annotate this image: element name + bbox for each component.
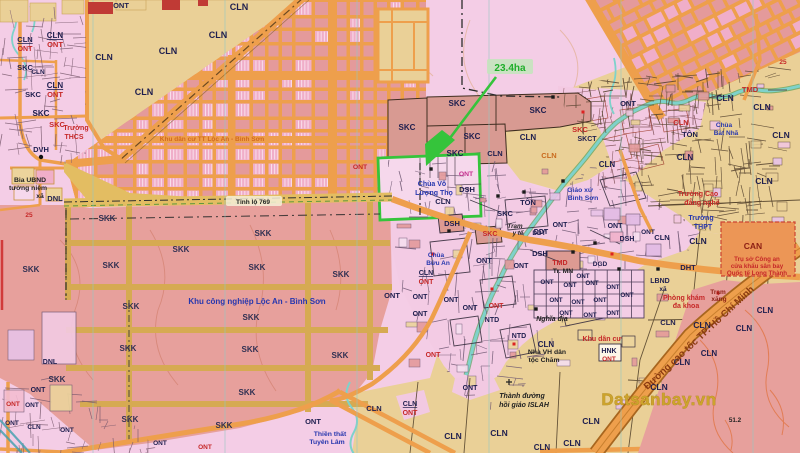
svg-text:ONT: ONT [60,427,74,434]
svg-text:THCS: THCS [64,134,83,141]
svg-text:ONT: ONT [413,294,429,301]
svg-text:Bình Sơn: Bình Sơn [568,195,599,202]
svg-text:DGD: DGD [593,261,608,268]
svg-text:ONT: ONT [606,284,619,291]
svg-text:SKCT: SKCT [577,136,597,143]
svg-text:ONT: ONT [403,410,419,417]
svg-text:tộc Chăm: tộc Chăm [529,357,560,364]
svg-text:SKC: SKC [497,209,513,218]
svg-text:CLN: CLN [582,416,599,426]
svg-text:CLN: CLN [435,197,450,206]
svg-text:ONT: ONT [419,279,435,286]
svg-text:SKC: SKC [464,132,481,141]
svg-text:TMD: TMD [742,85,759,94]
svg-text:Trường: Trường [63,125,88,132]
svg-text:CLN: CLN [47,81,64,90]
svg-text:SKK: SKK [333,270,350,279]
svg-text:CLN: CLN [444,431,461,441]
svg-text:DSH: DSH [444,219,460,228]
svg-text:DDT: DDT [532,230,545,237]
svg-text:SKK: SKK [242,345,259,354]
svg-text:DNL: DNL [47,194,63,203]
svg-text:ONT: ONT [608,223,624,230]
svg-text:Trường: Trường [688,215,713,222]
svg-text:ONT: ONT [47,40,63,49]
svg-text:Khu dân cư TT Lộc An - Bình Sơ: Khu dân cư TT Lộc An - Bình Sơn [160,136,264,143]
svg-text:cửa khẩu sân bay: cửa khẩu sân bay [731,263,784,270]
svg-text:CLN: CLN [677,153,694,162]
svg-text:CLN: CLN [159,46,178,56]
svg-text:CLN: CLN [230,2,249,12]
svg-text:CLN: CLN [403,401,417,408]
svg-text:ONT: ONT [620,99,636,108]
svg-text:SKK: SKK [103,261,120,270]
svg-text:SKK: SKK [216,421,233,430]
svg-text:CLN: CLN [660,318,675,327]
svg-text:ONT: ONT [353,164,368,171]
svg-text:Thành đường: Thành đường [499,393,545,400]
svg-text:Trạm: Trạm [710,289,726,296]
svg-text:ONT: ONT [5,420,19,427]
svg-text:CLN: CLN [31,69,45,76]
svg-text:SKC: SKC [530,106,547,115]
svg-text:Thiền thất: Thiền thất [314,429,347,438]
svg-text:ONT: ONT [540,279,553,286]
svg-text:TMD: TMD [552,260,567,267]
svg-text:ONT: ONT [571,299,584,306]
svg-text:25: 25 [779,59,787,66]
svg-text:SKC: SKC [483,231,498,238]
svg-text:Trạm: Trạm [507,223,523,230]
svg-text:ONT: ONT [563,282,576,289]
svg-text:CAN: CAN [744,241,762,251]
svg-text:Datsanbay.vn: Datsanbay.vn [601,390,716,409]
svg-text:51.2: 51.2 [729,417,742,424]
svg-text:ONT: ONT [305,417,321,426]
svg-text:ONT: ONT [198,444,212,451]
svg-text:CLN: CLN [701,349,718,358]
svg-text:CLN: CLN [772,130,789,140]
svg-text:CLN: CLN [490,428,507,438]
svg-text:25: 25 [25,212,33,219]
svg-text:HNK: HNK [601,348,616,355]
svg-text:Giáo xứ: Giáo xứ [567,187,593,194]
svg-text:DVH: DVH [33,145,49,154]
svg-text:DSH: DSH [620,236,635,243]
svg-text:ONT: ONT [489,303,505,310]
svg-text:CLN: CLN [563,438,580,448]
svg-text:NTD: NTD [512,333,526,340]
svg-text:CLN: CLN [755,176,772,186]
svg-text:CLN: CLN [654,233,669,242]
svg-text:ONT: ONT [413,311,429,318]
svg-text:SKK: SKK [122,415,139,424]
svg-text:CLN: CLN [736,324,753,333]
svg-text:tưởng niệm: tưởng niệm [9,185,47,192]
svg-text:SKK: SKK [120,344,137,353]
svg-text:ONT: ONT [153,440,167,447]
svg-text:xã: xã [659,286,667,293]
svg-text:xăng: xăng [711,296,726,303]
svg-text:Bia UBND: Bia UBND [14,177,46,184]
svg-text:SKK: SKK [23,265,40,274]
svg-text:CLN: CLN [673,118,688,127]
svg-text:ONT: ONT [583,312,596,319]
svg-text:ONT: ONT [384,291,400,300]
svg-text:ONT: ONT [514,263,530,270]
svg-text:Khu dân cư: Khu dân cư [583,336,623,343]
svg-text:Bát Nhã: Bát Nhã [714,130,739,137]
svg-text:CLN: CLN [419,270,433,277]
svg-text:SKC: SKC [25,90,41,99]
svg-text:SKK: SKK [123,302,140,311]
svg-text:ONT: ONT [459,171,474,178]
svg-text:ONT: ONT [113,1,129,10]
svg-text:Nghĩa địa: Nghĩa địa [536,316,568,323]
svg-text:SKK: SKK [239,388,256,397]
svg-text:hồi giáo ISLAH: hồi giáo ISLAH [499,400,550,409]
svg-text:ONT: ONT [602,356,616,363]
svg-text:NTD: NTD [485,317,499,324]
svg-text:ONT: ONT [444,297,460,304]
svg-text:ONT: ONT [47,90,63,99]
svg-text:SKC: SKC [33,109,50,118]
svg-text:CLN: CLN [95,52,112,62]
svg-text:ONT: ONT [18,46,34,53]
svg-text:SKC: SKC [449,99,466,108]
svg-text:đẳng nghề: đẳng nghề [684,198,719,207]
svg-text:CLN: CLN [520,133,537,142]
svg-text:CLN: CLN [689,236,706,246]
svg-text:ONT: ONT [620,292,633,299]
svg-text:SKC: SKC [447,149,464,158]
svg-text:ONT: ONT [6,401,20,408]
svg-text:CLN: CLN [209,30,228,40]
svg-text:SKC: SKC [572,125,588,134]
svg-text:DHT: DHT [680,263,696,272]
svg-text:đa khoa: đa khoa [673,303,700,310]
svg-text:Tuyên Lâm: Tuyên Lâm [309,439,344,446]
svg-text:CLN: CLN [17,35,32,44]
svg-text:CLN: CLN [541,151,556,160]
svg-text:CLN: CLN [599,160,616,169]
svg-text:xã: xã [36,193,44,200]
svg-text:ONT: ONT [476,256,492,265]
svg-text:SKK: SKK [243,313,260,322]
svg-text:LBND: LBND [650,278,669,285]
svg-text:ONT: ONT [553,222,569,229]
svg-text:CLN: CLN [534,443,551,452]
svg-text:CLN: CLN [366,404,381,413]
svg-text:Trụ sở Công an: Trụ sở Công an [734,256,780,263]
svg-text:ONT: ONT [426,352,442,359]
svg-text:Bửu An: Bửu An [426,260,450,267]
svg-text:Nhà VH dân: Nhà VH dân [528,349,566,356]
svg-text:CLN: CLN [538,340,555,349]
svg-text:TÔN: TÔN [520,198,536,207]
svg-text:SKK: SKK [249,263,266,272]
svg-text:Chùa: Chùa [428,252,445,259]
svg-text:Chùa Vô: Chùa Vô [418,181,446,188]
svg-text:ONT: ONT [576,273,589,280]
svg-text:ONT: ONT [559,310,572,317]
svg-text:THPT: THPT [694,224,713,231]
svg-text:Trường Cao: Trường Cao [678,191,718,198]
svg-text:DNL: DNL [43,359,58,366]
svg-text:CLN: CLN [716,93,733,103]
svg-text:ONT: ONT [606,310,619,317]
svg-text:CLN: CLN [27,424,41,431]
svg-text:Lượng Thọ: Lượng Thọ [415,190,453,197]
svg-text:CLN: CLN [487,149,502,158]
svg-text:ONT: ONT [549,297,562,304]
svg-text:CLN: CLN [757,306,774,315]
svg-text:SKK: SKK [49,375,66,384]
svg-text:Tr. MN: Tr. MN [553,268,573,275]
svg-text:ONT: ONT [463,305,479,312]
svg-text:Khu công nghiệp Lộc An - Bình: Khu công nghiệp Lộc An - Bình Sơn [188,297,325,306]
svg-text:ONT: ONT [25,402,39,409]
svg-text:ONT: ONT [593,297,606,304]
svg-text:23.4ha: 23.4ha [494,63,526,74]
svg-text:SKK: SKK [173,245,190,254]
svg-text:CLN: CLN [47,31,64,40]
svg-text:DSH: DSH [459,185,475,194]
svg-text:Chùa: Chùa [716,122,733,129]
svg-text:ONT: ONT [585,280,598,287]
svg-text:TÔN: TÔN [682,130,698,139]
svg-text:SKK: SKK [99,214,116,223]
svg-text:Phòng khám: Phòng khám [663,295,705,302]
svg-text:Tỉnh lộ 769: Tỉnh lộ 769 [236,199,270,206]
svg-text:ONT: ONT [463,385,479,392]
svg-text:CLN: CLN [753,102,770,112]
svg-text:SKC: SKC [399,123,416,132]
svg-text:y tế: y tế [512,229,525,237]
svg-text:SKK: SKK [332,351,349,360]
svg-text:ONT: ONT [641,229,655,236]
svg-text:Quốc tế Long Thành: Quốc tế Long Thành [727,270,787,277]
svg-text:DSH: DSH [532,249,548,258]
svg-text:ONT: ONT [31,387,47,394]
svg-text:CLN: CLN [135,87,154,97]
svg-text:SKK: SKK [255,229,272,238]
